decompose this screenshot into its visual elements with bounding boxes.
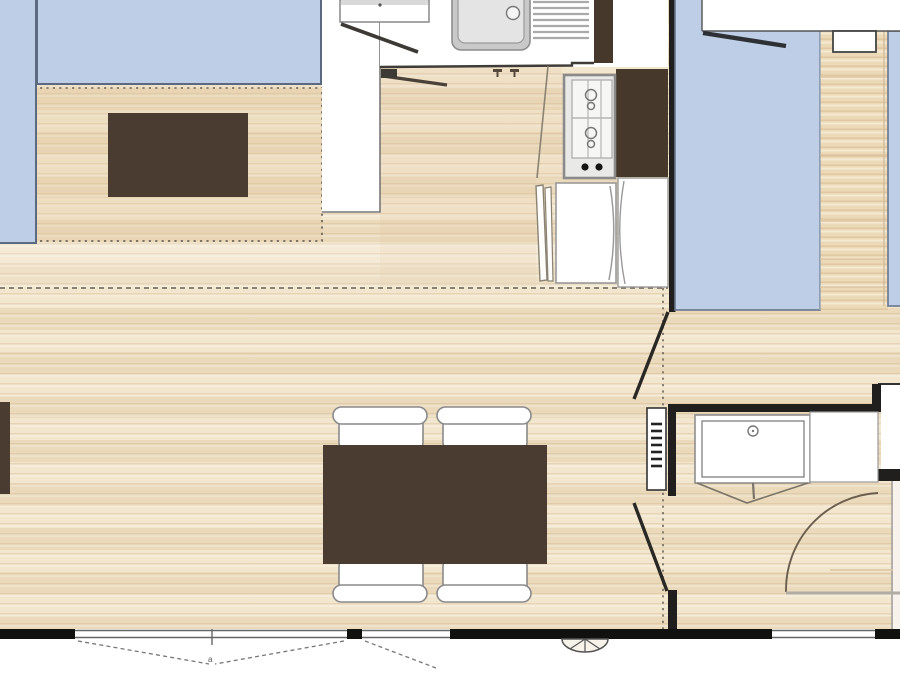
svg-text:a: a	[208, 655, 213, 664]
